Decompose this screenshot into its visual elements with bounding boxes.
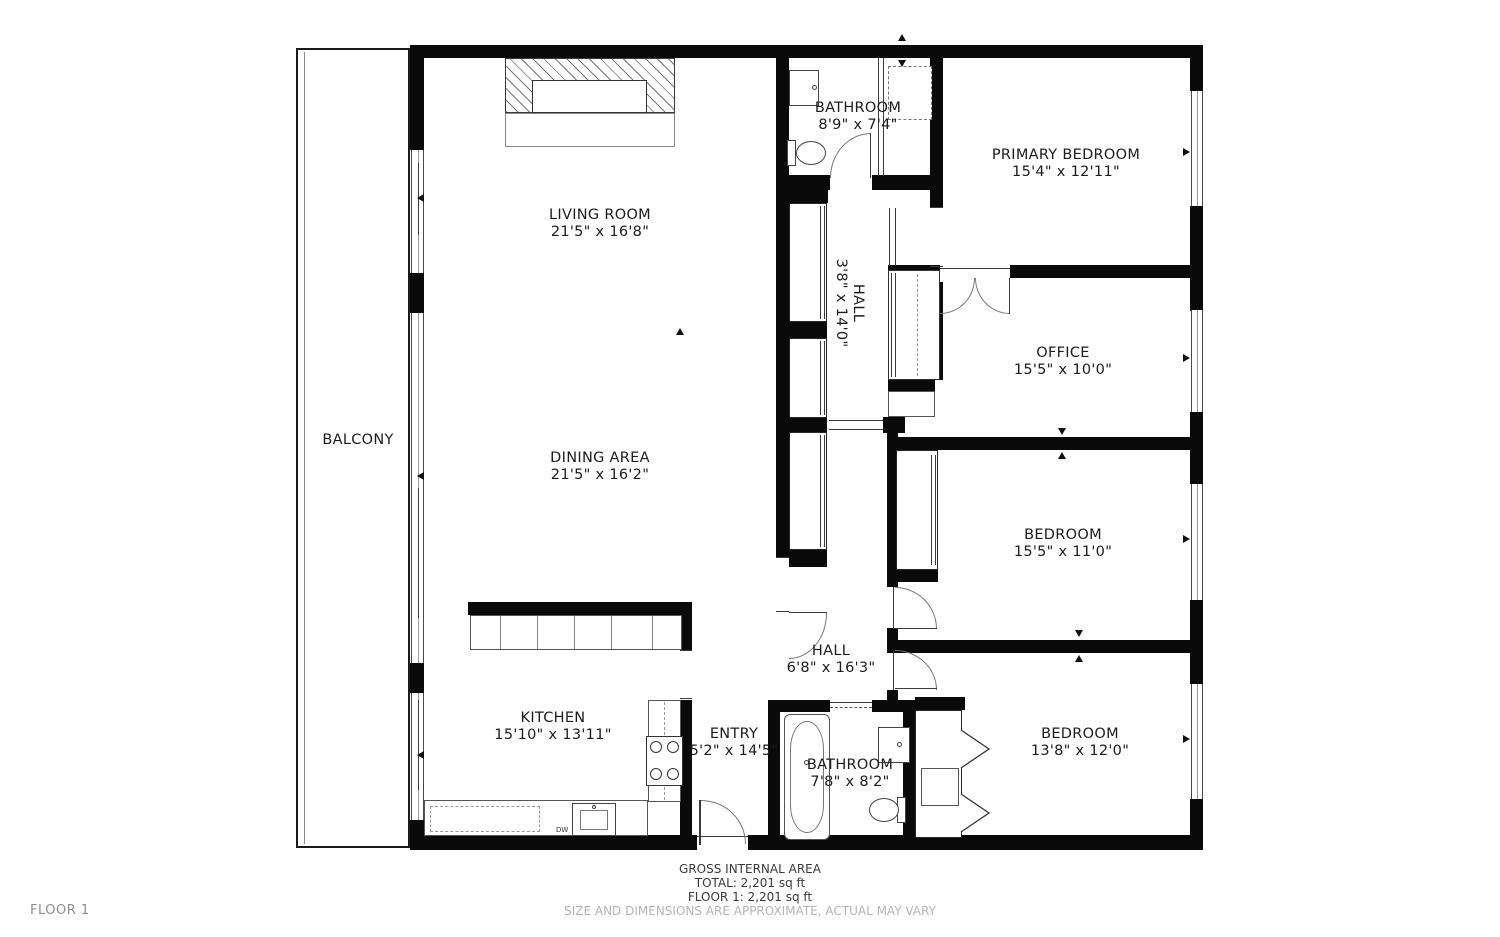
closet-shelf [921,768,959,806]
wall-closet-sep [789,322,827,338]
wall-closetB-north [915,697,965,710]
wall-kitchen-peninsula [468,602,692,615]
room-dims: 15'5" x 10'0" [1014,362,1112,379]
faucet-dot [592,805,596,809]
opening-jamb [680,650,692,651]
door-arc [975,278,1010,314]
sliding-closet-door [824,435,825,547]
floor-label: FLOOR 1 [30,903,90,918]
footer-total: TOTAL: 2,201 sq ft [564,876,936,890]
room-label-bedroom-mid: BEDROOM 15'5" x 11'0" [1014,527,1112,561]
closet [789,203,827,322]
dimension-tick [1183,535,1190,543]
dimension-tick [1058,452,1066,459]
room-name: BALCONY [322,432,393,449]
room-name: BEDROOM [1014,527,1112,544]
door-sill [895,628,937,629]
room-label-office: OFFICE 15'5" x 10'0" [1014,345,1112,379]
kitchen-counter [470,615,682,650]
sliding-closet-door [824,206,825,319]
footer-disclaimer: SIZE AND DIMENSIONS ARE APPROXIMATE, ACT… [564,904,936,918]
door-leaf [939,278,940,314]
room-name: ENTRY [690,726,779,743]
opening-jamb [776,557,789,558]
wall-bath1-south [872,175,932,190]
wall-closet-sep [789,417,827,432]
burner [650,768,662,780]
closet [789,338,827,418]
toilet-bowl-icon [869,798,899,822]
room-name: LIVING ROOM [549,207,651,224]
sliding-closet-door [820,341,821,415]
door-arc [895,650,937,690]
room-name: BEDROOM [1031,726,1129,743]
dimension-tick [417,194,424,202]
exterior-wall-bottom [410,835,697,850]
wall-corner-block [776,175,828,203]
window [1191,310,1203,412]
fireplace-hearth [505,113,675,147]
door-arc [830,133,871,178]
burner [667,768,679,780]
door-arc [940,278,975,314]
room-dims: 7'8" x 8'2" [807,774,893,791]
counter-divider [500,616,501,649]
pocket-door-jamb [930,266,943,267]
door-leaf [870,133,871,178]
floorplan-canvas: DW LIVING ROOM 21'5" x 16'8" DINING AREA… [0,0,1500,937]
wall-bath2-east [903,700,915,848]
room-label-entry: ENTRY 5'2" x 14'5" [690,726,779,760]
pocket-door [829,420,883,421]
dimension-tick [1075,655,1083,662]
exterior-wall-right [1190,45,1203,91]
exterior-wall-right [1190,799,1203,848]
room-label-bathroom-upper: BATHROOM 8'9" x 7'4" [815,100,901,134]
pocket-door-dashed [830,707,872,709]
closet [789,432,827,550]
dishwasher-label: DW [556,826,568,834]
dimension-tick [417,751,424,759]
wall-bedroom-divider [887,640,1197,653]
room-dims: 21'5" x 16'8" [549,224,651,241]
room-label-bedroom-lower: BEDROOM 13'8" x 12'0" [1031,726,1129,760]
room-name: OFFICE [1014,345,1112,362]
pocket-door-panel [895,208,896,266]
room-dims: 21'5" x 16'2" [550,467,650,484]
room-name: KITCHEN [494,710,611,727]
footer-area-summary: GROSS INTERNAL AREA TOTAL: 2,201 sq ft F… [564,862,936,918]
dimension-tick [1058,428,1066,435]
dimension-tick [898,34,906,41]
dimension-tick [676,328,684,335]
dimension-tick [417,472,424,480]
footer-floor1: FLOOR 1: 2,201 sq ft [564,890,936,904]
wall-bath2-north [768,700,830,712]
room-dims: 15'4" x 12'11" [992,164,1140,181]
toilet-tank-icon [787,140,796,166]
exterior-wall-left [410,273,424,313]
exterior-wall-right [1190,206,1203,311]
dimension-tick [1183,735,1190,743]
faucet-dot [812,85,817,90]
window [1191,484,1203,600]
kitchen-sink-basin [580,810,608,830]
wall-office-south [887,437,1197,450]
room-dims: 13'8" x 12'0" [1031,743,1129,760]
room-label-dining-area: DINING AREA 21'5" x 16'2" [550,450,650,484]
dimension-tick [1183,354,1190,362]
room-dims: 8'9" x 7'4" [815,117,901,134]
counter-divider [537,616,538,649]
burner [667,741,679,753]
door-arc [701,800,746,844]
room-name: BATHROOM [807,757,893,774]
sliding-closet-door [820,435,821,547]
dimension-tick [898,60,906,67]
slider-leaf [418,488,419,618]
window [1191,91,1203,206]
door-sill [895,688,937,689]
dimension-tick [1075,630,1083,637]
wall-living-hall [776,203,789,557]
door-arc [895,587,937,629]
window [1191,684,1203,799]
exterior-wall-left [410,820,424,848]
room-dims: 5'2" x 14'5" [690,743,779,760]
opening-jamb [680,698,692,699]
wall-closet-sep [789,550,827,567]
sliding-closet-door [891,273,892,377]
room-label-living-room: LIVING ROOM 21'5" x 16'8" [549,207,651,241]
room-dims: 3'8" x 14'0" [832,259,849,348]
room-label-kitchen: KITCHEN 15'10" x 13'11" [494,710,611,744]
toilet-bowl-icon [796,141,826,165]
sliding-closet-door [820,206,821,319]
sliding-closet-door [824,341,825,415]
exterior-wall-left [410,45,424,150]
sliding-closet-door [931,455,932,565]
bifold-door-icon [960,722,992,840]
cabinet-dashed [430,806,540,832]
wall-bath2-west [768,700,780,848]
door-leaf [1009,278,1010,314]
room-label-primary-bedroom: PRIMARY BEDROOM 15'4" x 12'11" [992,147,1140,181]
room-name: DINING AREA [550,450,650,467]
balcony-inner-line [304,52,305,844]
room-label-bathroom-lower: BATHROOM 7'8" x 8'2" [807,757,893,791]
exterior-wall-left [410,663,424,693]
sliding-closet-door [895,273,896,377]
wall-primary-office [1010,265,1197,278]
dimension-tick [1183,148,1190,156]
room-name: HALL [787,643,876,660]
counter-divider [574,616,575,649]
pocket-door [829,429,883,430]
room-name: HALL [849,259,866,348]
counter-divider [611,616,612,649]
room-label-hall-lower: HALL 6'8" x 16'3" [787,643,876,677]
counter-divider [652,616,653,649]
room-name: BATHROOM [815,100,901,117]
pocket-door [830,702,872,703]
pocket-door-panel [889,208,890,266]
faucet-dot [897,742,902,747]
room-dims: 15'5" x 11'0" [1014,544,1112,561]
room-label-balcony: BALCONY [322,432,393,449]
exterior-wall-top [410,45,1203,58]
closet-nook [888,391,935,417]
closet-rod-dashed [917,274,919,376]
sliding-closet-door [935,455,936,565]
french-door-sill [940,268,1010,269]
opening-jamb [776,611,789,612]
room-label-hall-upper: HALL 3'8" x 14'0" [832,259,866,348]
fireplace-firebox [532,80,647,113]
burner [650,741,662,753]
footer-title: GROSS INTERNAL AREA [564,862,936,876]
wall-closet-south [896,568,938,582]
room-dims: 6'8" x 16'3" [787,660,876,677]
slider-leaf [418,700,419,790]
room-name: PRIMARY BEDROOM [992,147,1140,164]
pocket-door-jamb [930,207,943,208]
room-dims: 15'10" x 13'11" [494,727,611,744]
